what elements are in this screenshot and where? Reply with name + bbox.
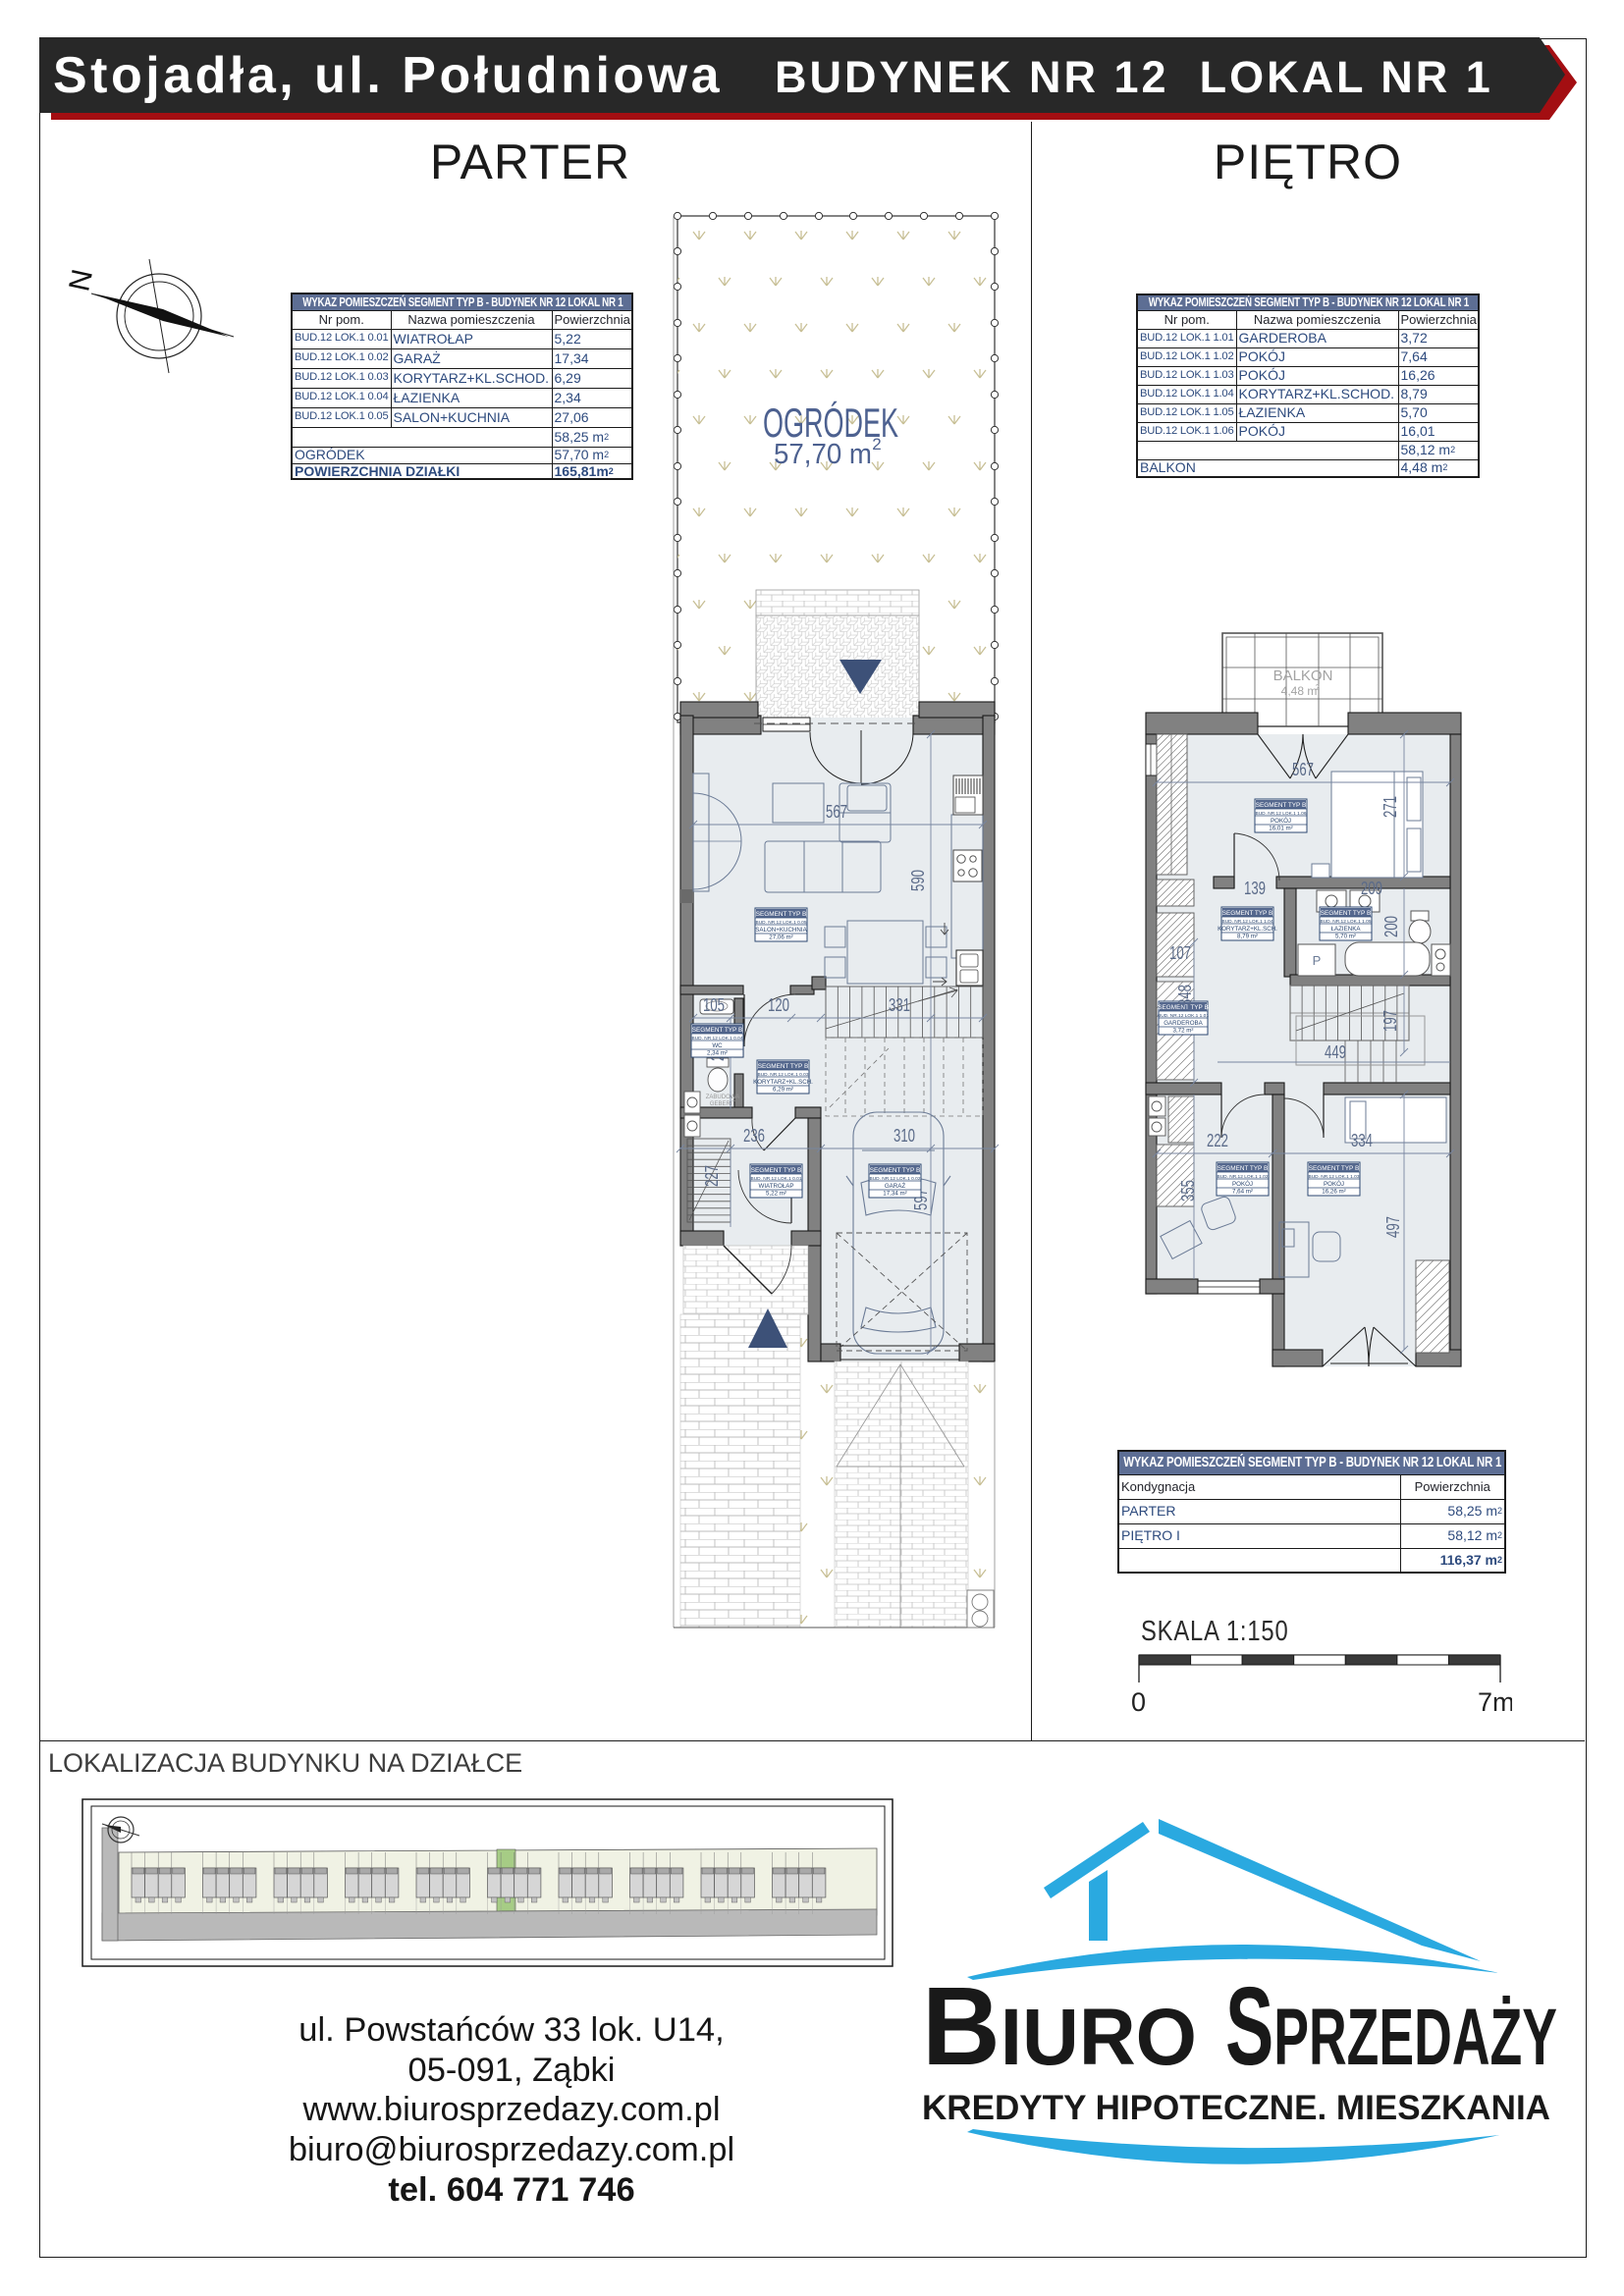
svg-text:KORYTARZ+KL.SCH.: KORYTARZ+KL.SCH. xyxy=(753,1079,813,1086)
svg-text:5,22 m²: 5,22 m² xyxy=(766,1191,786,1198)
svg-text:334: 334 xyxy=(1351,1131,1373,1150)
svg-text:4,48 m: 4,48 m xyxy=(1281,684,1318,698)
svg-text:GARAŻ: GARAŻ xyxy=(885,1183,906,1190)
svg-text:SEGMENT TYP B: SEGMENT TYP B xyxy=(870,1167,921,1174)
svg-text:200: 200 xyxy=(1381,916,1401,937)
svg-text:567: 567 xyxy=(826,802,847,822)
svg-text:SEGMENT TYP B: SEGMENT TYP B xyxy=(692,1027,743,1034)
svg-text:17,34 m²: 17,34 m² xyxy=(883,1191,906,1198)
svg-text:SEGMENT TYP B: SEGMENT TYP B xyxy=(1218,1165,1269,1172)
svg-text:105: 105 xyxy=(703,995,725,1015)
svg-text:271: 271 xyxy=(1380,796,1400,818)
svg-text:331: 331 xyxy=(889,995,910,1015)
svg-text:227: 227 xyxy=(702,1165,722,1187)
svg-text:567: 567 xyxy=(1292,760,1314,779)
svg-text:27,06 m²: 27,06 m² xyxy=(769,934,792,941)
svg-text:GARDEROBA: GARDEROBA xyxy=(1164,1020,1203,1027)
svg-text:16,26 m²: 16,26 m² xyxy=(1322,1189,1345,1196)
svg-text:SPRZEDAŻY: SPRZEDAŻY xyxy=(1225,1964,1557,2088)
svg-text:WIATROŁAP: WIATROŁAP xyxy=(759,1183,794,1190)
svg-text:5,70 m²: 5,70 m² xyxy=(1335,934,1356,940)
svg-text:GEBERIT: GEBERIT xyxy=(710,1101,736,1107)
svg-text:2: 2 xyxy=(1316,683,1321,692)
svg-text:KREDYTY HIPOTECZNE. MIESZKANIA: KREDYTY HIPOTECZNE. MIESZKANIA xyxy=(922,2089,1550,2127)
svg-text:197: 197 xyxy=(1380,1010,1400,1032)
svg-text:SEGMENT TYP B: SEGMENT TYP B xyxy=(1222,910,1273,917)
svg-text:BIURO: BIURO xyxy=(922,1964,1197,2088)
svg-text:SEGMENT TYP B: SEGMENT TYP B xyxy=(1321,910,1372,917)
svg-text:310: 310 xyxy=(893,1126,915,1146)
svg-text:POKÓJ: POKÓJ xyxy=(1324,1181,1344,1188)
svg-text:3,72 m²: 3,72 m² xyxy=(1173,1028,1194,1035)
svg-text:236: 236 xyxy=(743,1126,765,1146)
svg-text:0: 0 xyxy=(1131,1687,1146,1717)
svg-text:222: 222 xyxy=(1207,1131,1228,1150)
svg-text:7,64 m²: 7,64 m² xyxy=(1232,1189,1253,1196)
svg-text:N: N xyxy=(63,266,99,294)
svg-text:KORYTARZ+KL.SCH.: KORYTARZ+KL.SCH. xyxy=(1218,926,1277,933)
svg-text:2,34 m²: 2,34 m² xyxy=(707,1050,728,1057)
svg-text:SEGMENT TYP B: SEGMENT TYP B xyxy=(756,911,807,918)
svg-text:8,79 m²: 8,79 m² xyxy=(1237,934,1258,940)
svg-text:SEGMENT TYP B: SEGMENT TYP B xyxy=(1256,802,1307,809)
svg-text:POKÓJ: POKÓJ xyxy=(1232,1181,1253,1188)
svg-text:2: 2 xyxy=(872,435,881,454)
svg-text:SEGMENT TYP B: SEGMENT TYP B xyxy=(1309,1165,1360,1172)
svg-text:6,29 m²: 6,29 m² xyxy=(773,1087,793,1094)
svg-text:ZABUDOWA: ZABUDOWA xyxy=(706,1095,739,1100)
svg-text:SALON+KUCHNIA: SALON+KUCHNIA xyxy=(755,927,807,934)
svg-text:120: 120 xyxy=(768,995,789,1015)
svg-text:POKÓJ: POKÓJ xyxy=(1271,818,1291,825)
svg-text:497: 497 xyxy=(1383,1216,1403,1238)
svg-text:107: 107 xyxy=(1169,943,1191,963)
svg-text:355: 355 xyxy=(1178,1180,1198,1201)
svg-text:ŁAZIENKA: ŁAZIENKA xyxy=(1331,926,1362,933)
svg-text:590: 590 xyxy=(908,870,928,891)
svg-text:449: 449 xyxy=(1325,1042,1346,1062)
svg-text:WC: WC xyxy=(712,1042,723,1049)
svg-text:SEGMENT TYP B: SEGMENT TYP B xyxy=(758,1063,809,1070)
svg-text:209: 209 xyxy=(1361,879,1382,898)
svg-text:57,70 m: 57,70 m xyxy=(774,439,872,470)
svg-text:139: 139 xyxy=(1244,879,1266,898)
svg-text:P: P xyxy=(1313,953,1322,968)
svg-text:BALKON: BALKON xyxy=(1273,667,1333,684)
svg-text:7m: 7m xyxy=(1478,1687,1512,1717)
svg-text:SEGMENT TYP B: SEGMENT TYP B xyxy=(751,1167,802,1174)
svg-text:16,01 m²: 16,01 m² xyxy=(1269,826,1292,832)
svg-text:348: 348 xyxy=(1175,985,1195,1006)
